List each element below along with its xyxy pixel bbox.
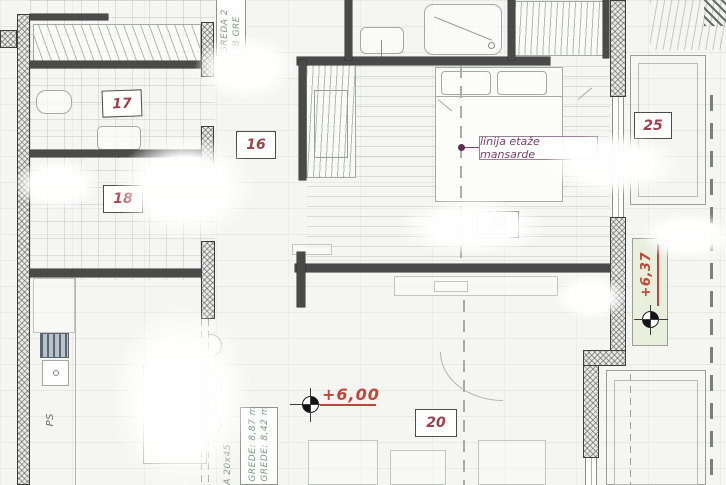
pier-2 [201,126,214,168]
washbasin-icon [97,126,141,150]
beam-note-top: GREDA 2 AB GRE [216,0,246,56]
bath-sink-tap-line [381,40,382,58]
mansarde-label-text: linija etaže mansarde [480,135,597,161]
marker-crosshair-v [650,305,651,335]
chair-icon [209,374,222,397]
level-interior-underline [320,404,376,406]
room-label-25: 25 [634,112,672,139]
ridge-dashed-left-b [208,319,209,485]
beam-bottom-outside-text: A 20x45 [223,444,233,485]
bath-sink-icon [360,27,404,54]
wall-v-bedroom-left [299,60,306,180]
wardrobe-inner-rect [314,90,348,158]
room-18-number: 18 [113,191,132,207]
mansarde-label-box: linija etaže mansarde [479,136,598,160]
room-label-17: 17 [102,89,143,117]
bed-pillow-right [497,71,547,95]
dining-table-icon [143,364,207,464]
ps-text: PS [45,413,56,426]
beam-top-text-2: AB GRE [232,16,242,53]
pier-3 [201,241,215,319]
wall-v-bathroom-left [345,0,352,60]
wall-h-room18-kitchen [30,269,202,277]
room-label-20: 20 [415,409,457,437]
beam-bottom-text-1: GREDE: 8,87 m [248,407,258,482]
kitchen-sink-dot [53,370,59,376]
room-label-16: 16 [236,131,276,159]
wall-jog-horizontal [583,350,626,366]
room-25-number: 25 [643,118,662,134]
wall-jog-vertical [583,365,599,458]
toilet-icon [36,90,72,114]
room-label-24: 24 [477,211,519,238]
bed-pillow-left [441,71,491,95]
corner-dark-hatch [704,0,726,26]
beam-note-bottom: GREDE: 8,87 m GREDE: 8,42 m [240,407,278,485]
wall-v-bedroom-bottom-stub [297,252,305,307]
pier-right-top [610,0,626,97]
level-terrace-text: +6,37 [639,252,654,297]
window-bottom-right [585,458,597,485]
bathtub-drain-dot [488,42,495,49]
level-terrace-underline [657,244,659,306]
level-interior-text: +6,00 [322,385,380,404]
ridge-dashed-left-a [201,319,202,485]
wall-v-wardrobe-right [603,0,609,58]
level-terrace-text-wrap: +6,37 [636,242,656,308]
beam-note-outside-wrap: A 20x45 [219,420,237,485]
chair-icon [209,334,222,357]
marker-crosshair-h [634,319,668,320]
kitchen-counter [33,278,75,333]
sofa-icon [308,440,378,485]
mansarde-dot [458,144,465,151]
shelf-icon [394,276,558,296]
marker-crosshair-v [310,388,311,422]
wardrobe-icon [33,24,201,62]
balcony-dashed [630,374,631,485]
boundary-dashed-right [710,95,713,485]
stove-icon [40,333,69,358]
sofa-icon [478,440,546,485]
room-16-number: 16 [246,137,265,153]
wall-left-stub [0,30,17,48]
centerline-dashed [460,66,462,264]
room-17-number: 17 [112,95,132,112]
mansarde-leader [465,147,479,148]
shelf-inner [434,281,468,292]
wall-h-room17-top [30,61,202,68]
room-20-number: 20 [426,415,445,431]
floor-plan-canvas: PS +6,37 +6,00 [0,0,726,485]
pier-1 [201,22,214,77]
wall-top-left-stub [30,14,108,20]
window-right [612,97,624,217]
centerline-dashed-lower [463,300,465,485]
kitchen-ps-label: PS [40,405,60,435]
wardrobe-top-bedroom [514,1,605,56]
kitchen-counter-edge [75,278,76,485]
wall-h-bedroom-bottom [295,264,611,272]
room-label-18: 18 [103,185,143,213]
coffee-table-icon [390,450,446,485]
beam-top-text-1: GREDA 2 [220,9,230,53]
wall-h-room17-18 [30,150,202,157]
beam-bottom-text-2: GREDE: 8,42 m [260,407,270,482]
door-swing-arc [440,352,503,401]
wall-left-exterior [17,14,30,485]
pier-right-mid [610,217,626,357]
balcony-br-rail-inner [614,380,698,485]
wall-v-bathroom-right [508,0,515,60]
room-24-number: 24 [488,217,507,233]
